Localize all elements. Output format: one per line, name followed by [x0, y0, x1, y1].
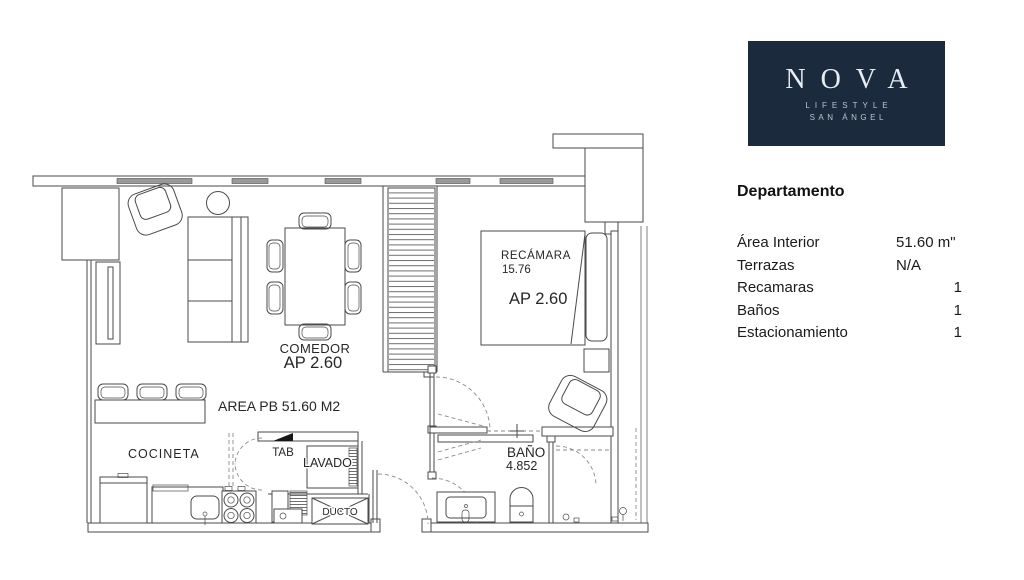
floor-area-label: AREA PB 51.60 M2 [218, 398, 340, 414]
tab-label: TAB [272, 447, 294, 459]
spec-label: Estacionamiento [737, 322, 896, 345]
spec-value: N/A [896, 255, 962, 278]
spec-row-estacionamiento: Estacionamiento 1 [737, 322, 962, 345]
stove [222, 487, 256, 524]
bedroom-area-label: 15.76 [502, 264, 531, 276]
panel-heading: Departamento [737, 183, 962, 201]
bed [481, 231, 607, 345]
bathroom-fixtures [437, 488, 627, 523]
spec-label: Área Interior [737, 232, 896, 255]
spec-value: 1 [896, 322, 962, 345]
floor-plan: RECÁMARA 15.76 AP 2.60 COMEDOR AP 2.60 A… [0, 0, 700, 580]
counter [152, 487, 223, 523]
spec-row-recamaras: Recamaras 1 [737, 277, 962, 300]
side-table [207, 192, 230, 215]
bedroom-label: RECÁMARA [501, 249, 571, 262]
laundry-label: LAVADO [303, 456, 352, 470]
sofa [188, 217, 248, 342]
spec-label: Baños [737, 300, 896, 323]
living-room-furniture [125, 181, 248, 342]
bedroom-armchair [545, 372, 610, 435]
spec-label: Terrazas [737, 255, 896, 278]
spec-row-terrazas: Terrazas N/A [737, 255, 962, 278]
spec-row-area-interior: Área Interior 51.60 m" [737, 232, 962, 255]
logo-subtitle-san-angel: SAN ÁNGEL [810, 113, 887, 122]
unit-spec-panel: Departamento Área Interior 51.60 m" Terr… [737, 183, 962, 345]
fridge [100, 477, 147, 523]
dining-set [267, 213, 361, 340]
nova-logo: NOVA LIFESTYLE SAN ÁNGEL [748, 41, 945, 146]
armchair [125, 181, 185, 238]
toilet [510, 488, 533, 523]
stair-core [383, 186, 437, 377]
spec-value: 1 [896, 300, 962, 323]
duct-label: DUCTO [322, 507, 358, 518]
floorplan-brochure-page: { "logo": { "bg": "#1c2a3e", "title": "N… [0, 0, 1024, 580]
nightstand [584, 349, 609, 372]
spec-value: 51.60 m" [896, 232, 962, 255]
logo-subtitle-lifestyle: LIFESTYLE [805, 101, 892, 110]
bath-label: BAÑO [507, 445, 545, 460]
kitchen-label: COCINETA [128, 447, 200, 461]
bedroom-height-label: AP 2.60 [509, 290, 567, 308]
logo-title: NOVA [785, 66, 922, 94]
spec-row-banos: Baños 1 [737, 300, 962, 323]
spec-value: 1 [896, 277, 962, 300]
spec-label: Recamaras [737, 277, 896, 300]
dining-height-label: AP 2.60 [284, 354, 342, 372]
bath-area-label: 4.852 [506, 459, 537, 473]
vanity [437, 492, 495, 522]
